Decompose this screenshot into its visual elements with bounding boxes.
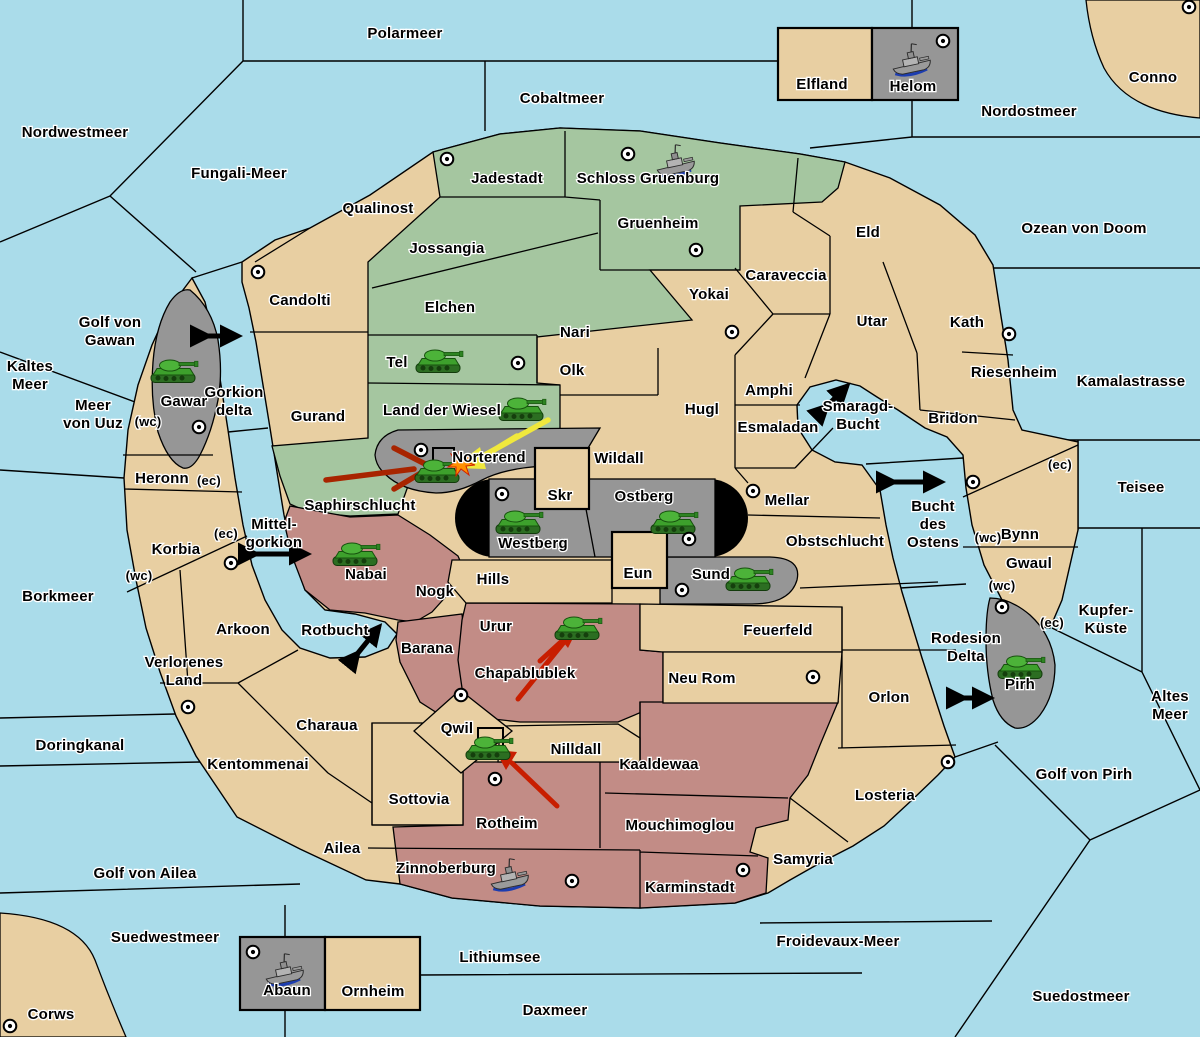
label-borkmeer: Borkmeer (22, 588, 94, 605)
label-suedwestmeer: Suedwestmeer (111, 929, 219, 946)
label-neu-rom: Neu Rom (668, 670, 735, 687)
label-ozean-von-doom: Ozean von Doom (1021, 220, 1146, 237)
supply-center-gawar (193, 421, 206, 434)
label-wc-korbia: (wc) (126, 568, 153, 583)
label-abaun: Abaun (263, 982, 311, 999)
label-saphirschlucht: Saphirschlucht (304, 497, 415, 514)
supply-center-neu-rom (807, 671, 820, 684)
label-norterend: Norterend (452, 449, 525, 466)
supply-center-sund (676, 584, 689, 597)
label-skr: Skr (548, 487, 573, 504)
label-wildall: Wildall (594, 450, 644, 467)
label-bucht-des-ostens-1: Bucht (911, 498, 955, 515)
label-hugl: Hugl (685, 401, 719, 418)
label-lithiumsee: Lithiumsee (459, 949, 540, 966)
label-smaragd-bucht-1: Smaragd- (823, 398, 894, 415)
territory-hills[interactable] (448, 560, 612, 603)
label-mittelgorkion-1: Mittel- (251, 516, 297, 533)
label-schloss-gruenburg: Schloss Gruenburg (577, 170, 720, 187)
label-golf-von-ailea: Golf von Ailea (93, 865, 197, 882)
label-polarmeer: Polarmeer (367, 25, 442, 42)
supply-center-verlorenes-land (182, 701, 195, 714)
label-olk: Olk (560, 362, 585, 379)
label-mellar: Mellar (765, 492, 810, 509)
supply-center-kath (1003, 328, 1016, 341)
supply-center-conno (1183, 1, 1196, 14)
label-fungali-meer: Fungali-Meer (191, 165, 287, 182)
supply-center-westberg (496, 488, 509, 501)
label-jadestadt: Jadestadt (471, 170, 543, 187)
label-kaltes-meer-1: Kaltes (7, 358, 53, 375)
label-korbia: Korbia (152, 541, 201, 558)
supply-center-corws (4, 1020, 17, 1033)
label-kentommenai: Kentommenai (207, 756, 308, 773)
label-ec-heronn: (ec) (197, 473, 221, 488)
label-golf-von-pirh: Golf von Pirh (1036, 766, 1133, 783)
label-ec-korbia: (ec) (214, 526, 238, 541)
label-zinnoberburg: Zinnoberburg (396, 860, 496, 877)
supply-center-qwil (455, 689, 468, 702)
label-losteria: Losteria (855, 787, 915, 804)
label-gorkion-delta-1: Gorkion (205, 384, 264, 401)
label-froidevaux-meer: Froidevaux-Meer (776, 933, 899, 950)
label-pirh: Pirh (1005, 676, 1035, 693)
label-kaltes-meer-2: Meer (12, 376, 48, 393)
label-candolti: Candolti (269, 292, 331, 309)
label-doringkanal: Doringkanal (36, 737, 125, 754)
label-altes-meer-2: Meer (1152, 706, 1188, 723)
label-yokai: Yokai (689, 286, 729, 303)
label-elchen: Elchen (425, 299, 475, 316)
supply-center-rotheim (489, 773, 502, 786)
label-verlorenes-land-2: Land (166, 672, 203, 689)
label-heronn: Heronn (135, 470, 189, 487)
label-wc-uuz: (wc) (135, 414, 162, 429)
label-obstschlucht: Obstschlucht (786, 533, 884, 550)
supply-center-mellar (747, 485, 760, 498)
label-urur: Urur (480, 618, 512, 635)
label-esmaladan: Esmaladan (737, 419, 818, 436)
label-smaragd-bucht-2: Bucht (836, 416, 880, 433)
label-kamalastrasse: Kamalastrasse (1077, 373, 1186, 390)
label-hills: Hills (477, 571, 510, 588)
label-ornheim: Ornheim (341, 983, 404, 1000)
supply-center-candolti (252, 266, 265, 279)
label-chapablublek: Chapablublek (475, 665, 576, 682)
label-utar: Utar (857, 313, 888, 330)
label-arkoon: Arkoon (216, 621, 270, 638)
label-sund: Sund (692, 566, 730, 583)
label-suedostmeer: Suedostmeer (1032, 988, 1129, 1005)
label-ailea: Ailea (324, 840, 361, 857)
label-orlon: Orlon (869, 689, 910, 706)
label-nordwestmeer: Nordwestmeer (22, 124, 129, 141)
supply-center-yokai (726, 326, 739, 339)
game-map: Polarmeer Nordwestmeer Fungali-Meer Coba… (0, 0, 1200, 1037)
label-rodesion-delta-1: Rodesion (931, 630, 1001, 647)
label-rodesion-delta-2: Delta (947, 648, 985, 665)
label-conno: Conno (1129, 69, 1177, 86)
label-gawar: Gawar (161, 393, 208, 410)
supply-center-zinnoberburg (566, 875, 579, 888)
label-westberg: Westberg (498, 535, 568, 552)
label-golf-von-gawan-2: Gawan (85, 332, 135, 349)
supply-center-abaun (247, 946, 260, 959)
label-gruenheim: Gruenheim (618, 215, 699, 232)
label-karminstadt: Karminstadt (645, 879, 735, 896)
label-qualinost: Qualinost (343, 200, 414, 217)
label-riesenheim: Riesenheim (971, 364, 1057, 381)
label-samyria: Samyria (773, 851, 833, 868)
label-cobaltmeer: Cobaltmeer (520, 90, 605, 107)
label-nogk: Nogk (416, 583, 455, 600)
label-bynn: Bynn (1001, 526, 1039, 543)
label-helom: Helom (890, 78, 937, 95)
label-barana: Barana (401, 640, 454, 657)
label-kupfer-kueste-1: Kupfer- (1079, 602, 1134, 619)
label-nilldall: Nilldall (551, 741, 602, 758)
label-corws: Corws (28, 1006, 75, 1023)
label-wc-bynn: (wc) (975, 530, 1002, 545)
label-nordostmeer: Nordostmeer (981, 103, 1077, 120)
supply-center-schloss-gruenburg (622, 148, 635, 161)
label-charaua: Charaua (296, 717, 358, 734)
label-amphi: Amphi (745, 382, 793, 399)
label-daxmeer: Daxmeer (523, 1002, 588, 1019)
supply-center-gruenheim (690, 244, 703, 257)
supply-center-jadestadt (441, 153, 454, 166)
label-tel: Tel (386, 354, 407, 371)
label-bucht-des-ostens-3: Ostens (907, 534, 959, 551)
label-nabai: Nabai (345, 566, 387, 583)
label-bucht-des-ostens-2: des (920, 516, 946, 533)
label-meer-von-uuz-2: von Uuz (63, 415, 123, 432)
label-elfland: Elfland (796, 76, 847, 93)
label-sottovia: Sottovia (389, 791, 450, 808)
label-meer-von-uuz-1: Meer (75, 397, 111, 414)
supply-center-pirh (996, 601, 1009, 614)
label-ostberg: Ostberg (615, 488, 674, 505)
label-jossangia: Jossangia (409, 240, 485, 257)
label-teisee: Teisee (1118, 479, 1165, 496)
label-wc-gwaul: (wc) (989, 578, 1016, 593)
supply-center-helom (937, 35, 950, 48)
supply-center-losteria (942, 756, 955, 769)
label-land-der-wiesel: Land der Wiesel (383, 402, 501, 419)
label-caraveccia: Caraveccia (745, 267, 827, 284)
label-eld: Eld (856, 224, 880, 241)
label-bridon: Bridon (928, 410, 978, 427)
label-rotheim: Rotheim (476, 815, 537, 832)
label-kaaldewaa: Kaaldewaa (619, 756, 699, 773)
label-feuerfeld: Feuerfeld (743, 622, 812, 639)
label-rotbucht: Rotbucht (301, 622, 368, 639)
label-golf-von-gawan-1: Golf von (79, 314, 141, 331)
supply-center-norterend (415, 444, 428, 457)
supply-center-karminstadt (737, 864, 750, 877)
label-mouchimoglou: Mouchimoglou (625, 817, 734, 834)
label-altes-meer-1: Altes (1151, 688, 1189, 705)
label-mittelgorkion-2: gorkion (246, 534, 302, 551)
map-canvas: Polarmeer Nordwestmeer Fungali-Meer Coba… (0, 0, 1200, 1037)
supply-center-ostberg (683, 533, 696, 546)
label-qwil: Qwil (441, 720, 473, 737)
supply-center-arkoon (225, 557, 238, 570)
label-gwaul: Gwaul (1006, 555, 1052, 572)
label-ec-gwaul: (ec) (1040, 615, 1064, 630)
label-nari: Nari (560, 324, 590, 341)
label-kupfer-kueste-2: Küste (1085, 620, 1128, 637)
supply-center-tel (512, 357, 525, 370)
label-gurand: Gurand (291, 408, 346, 425)
label-kath: Kath (950, 314, 984, 331)
label-eun: Eun (624, 565, 653, 582)
label-ec-bynn: (ec) (1048, 457, 1072, 472)
supply-center-bynn (967, 476, 980, 489)
label-verlorenes-land-1: Verlorenes (145, 654, 224, 671)
label-gorkion-delta-2: delta (216, 402, 252, 419)
